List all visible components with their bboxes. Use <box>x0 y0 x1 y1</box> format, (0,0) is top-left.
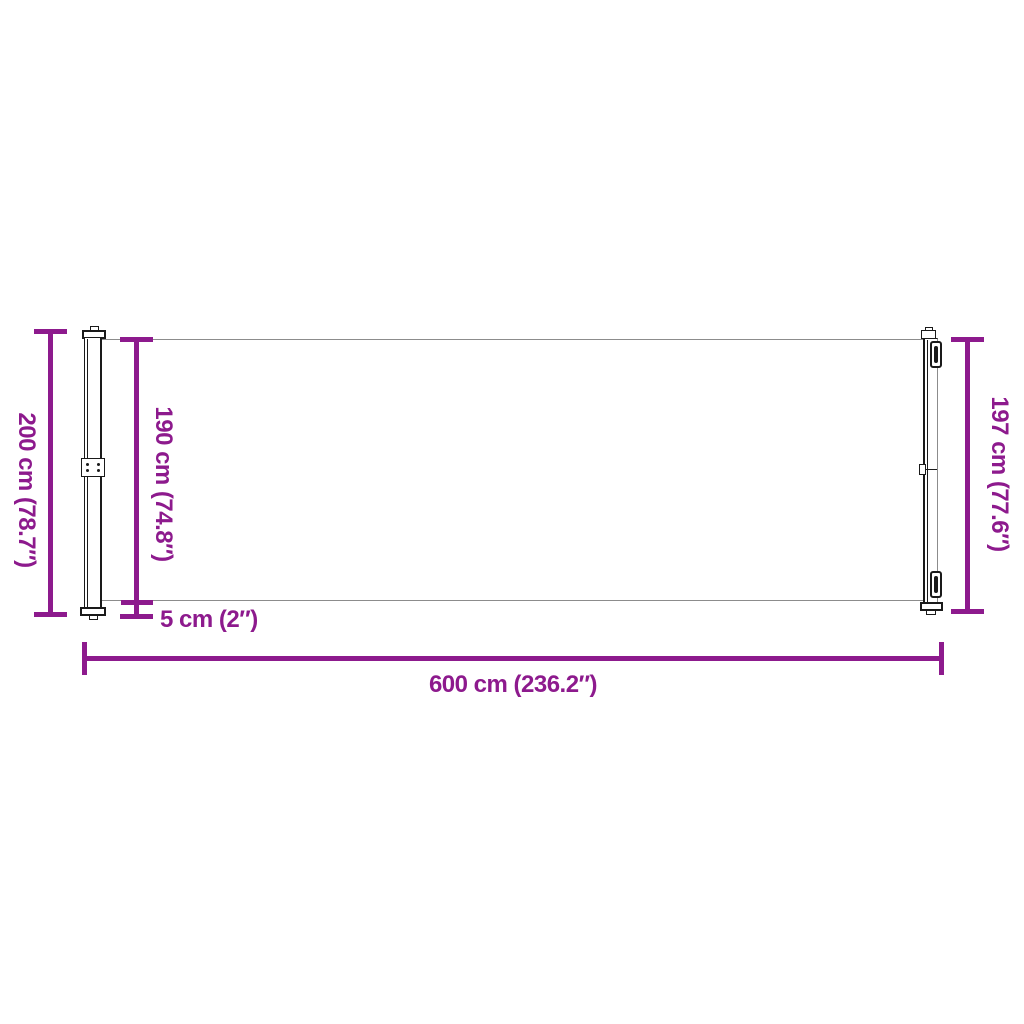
dim-total-length-line <box>84 656 942 661</box>
screw-dot <box>86 463 89 466</box>
pole-handle-top <box>930 341 942 368</box>
dim-total-height-label: 200 cm (78.7″) <box>12 412 40 567</box>
front-pole-inner-line <box>927 340 928 602</box>
dim-total-height-tick-bottom <box>34 612 67 617</box>
dim-pole-height-label: 197 cm (77.6″) <box>985 396 1013 551</box>
handle-grip <box>934 346 938 363</box>
front-pole-bottom-tab <box>926 610 936 615</box>
dim-pole-height-tick-top <box>951 337 984 342</box>
wall-mount-plate <box>81 458 105 477</box>
screw-dot <box>97 463 100 466</box>
awning-fabric <box>101 339 925 601</box>
left-post-bottom-tab <box>89 615 98 620</box>
dim-total-length-tick-right <box>939 642 944 675</box>
dim-total-length-label: 600 cm (236.2″) <box>429 671 597 699</box>
screw-dot <box>97 469 100 472</box>
pole-joint <box>919 464 926 475</box>
dim-ground-clearance-label: 5 cm (2″) <box>160 606 258 634</box>
dim-ground-clearance-tick-bottom <box>120 614 153 619</box>
dim-fabric-height-tick-bottom <box>121 600 153 605</box>
dim-total-length-tick-left <box>82 642 87 675</box>
dim-total-height-tick-top <box>34 329 67 334</box>
pole-handle-bottom <box>930 571 942 598</box>
dim-pole-height-line <box>965 339 970 612</box>
dim-fabric-height-line <box>134 339 139 619</box>
dimension-diagram: 200 cm (78.7″) 190 cm (74.8″) 5 cm (2″) … <box>0 0 1024 1024</box>
dim-fabric-height-tick-top <box>120 337 153 342</box>
dim-fabric-height-label: 190 cm (74.8″) <box>149 406 177 561</box>
dim-pole-height-tick-bottom <box>951 609 984 614</box>
dim-total-height-line <box>48 331 53 615</box>
screw-dot <box>86 469 89 472</box>
handle-grip <box>934 576 938 593</box>
